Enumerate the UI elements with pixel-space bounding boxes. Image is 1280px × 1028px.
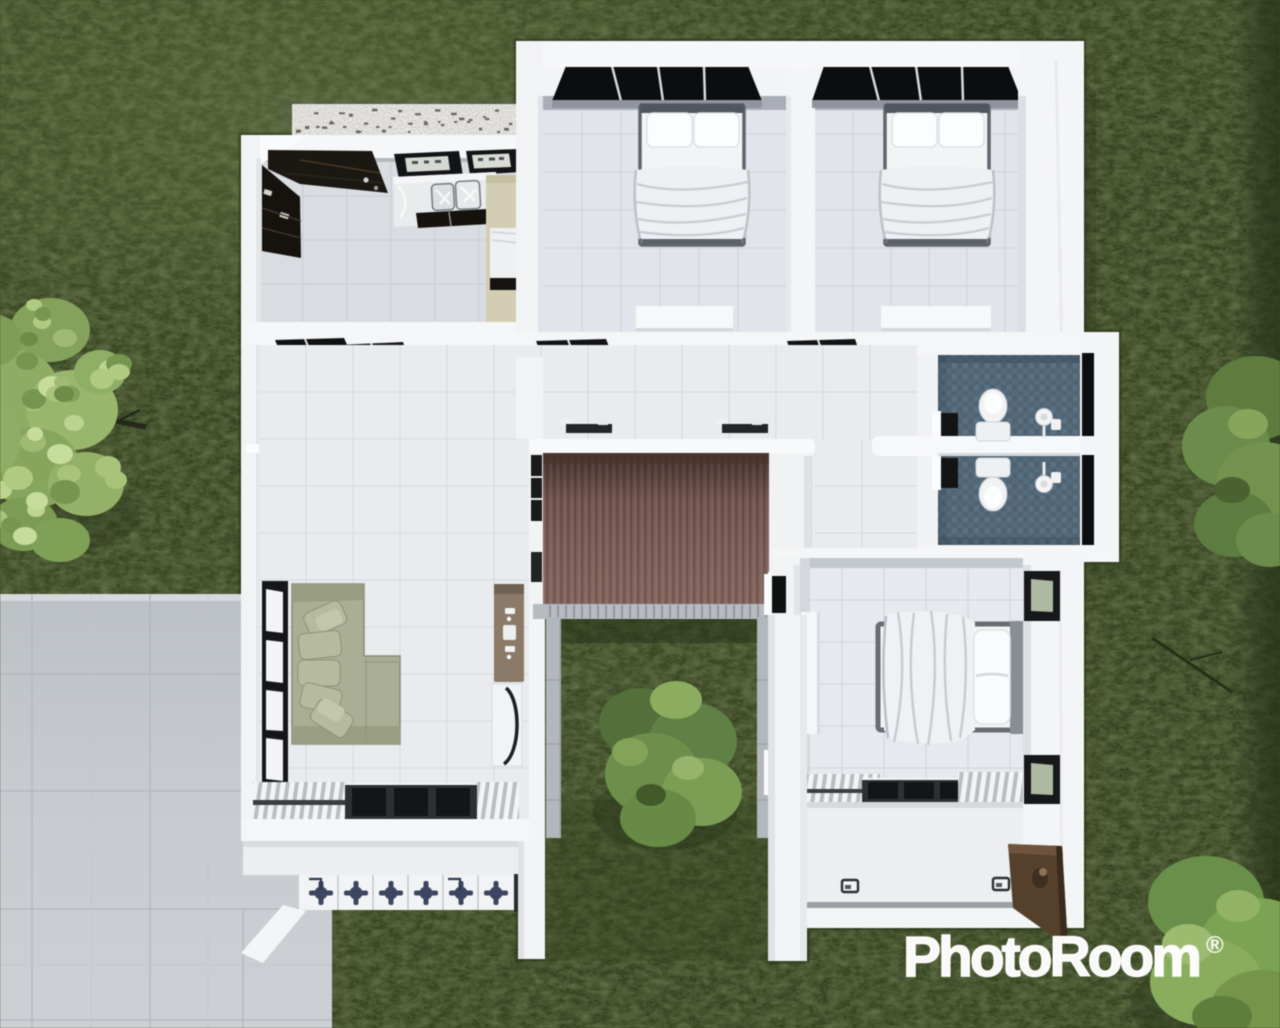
svg-text:®: ® <box>1206 932 1224 959</box>
svg-text:PhotoRoom: PhotoRoom <box>903 925 1199 989</box>
